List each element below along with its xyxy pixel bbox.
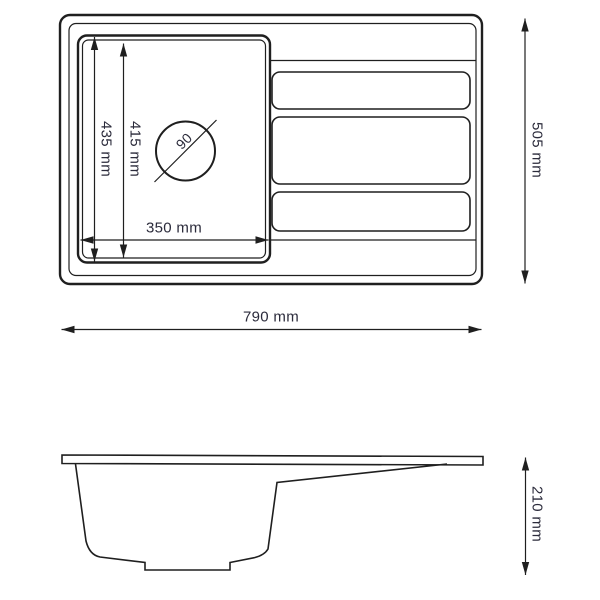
dim-label-bowl-depth-inner: 415 mm (127, 121, 144, 177)
side-view-drawing (62, 455, 526, 575)
drawing-geometry (0, 0, 600, 600)
sink-technical-drawing: 435 mm 415 mm 90 350 mm 505 mm 790 mm 21… (0, 0, 600, 600)
dim-label-bowl-width: 350 mm (146, 220, 202, 237)
side-bowl-profile (76, 464, 448, 570)
dim-label-height: 210 mm (528, 486, 545, 542)
dim-label-overall-width: 790 mm (243, 308, 299, 325)
drainboard-groove-2 (272, 117, 470, 184)
drainboard-groove-1 (272, 72, 470, 109)
dim-label-overall-depth: 505 mm (528, 122, 545, 178)
side-rim-band (62, 455, 483, 465)
dim-label-bowl-depth-outer: 435 mm (97, 121, 114, 177)
drainboard-groove-3 (272, 192, 470, 231)
drain-diameter-leader (155, 120, 217, 182)
